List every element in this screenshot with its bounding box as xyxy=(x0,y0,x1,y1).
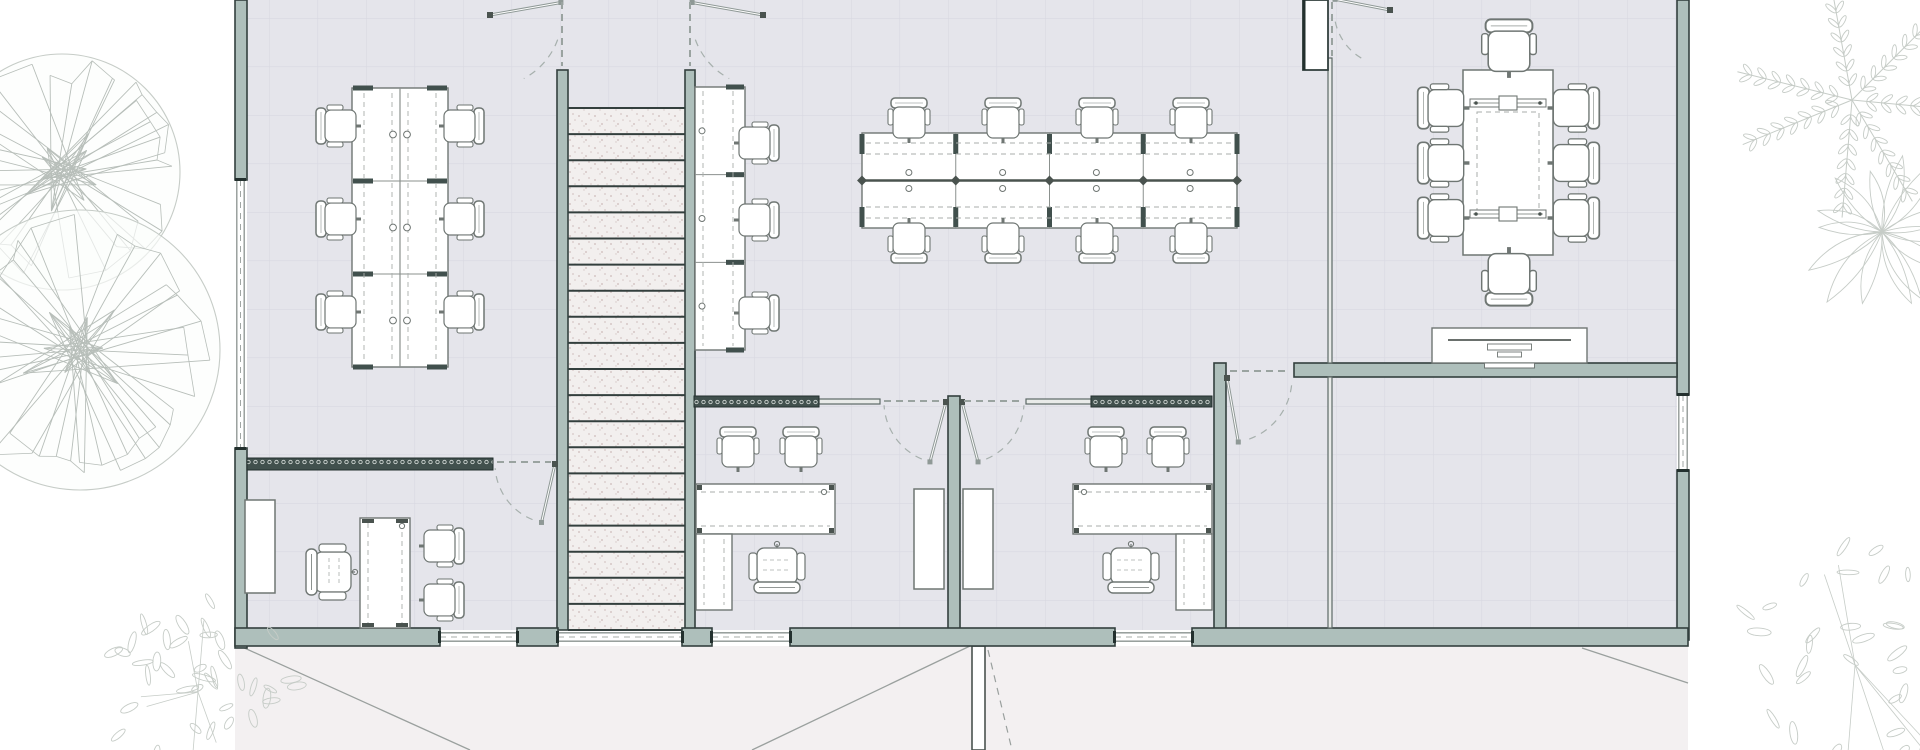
exterior-wall-bottom-5 xyxy=(1192,628,1688,646)
side-chair xyxy=(419,579,464,621)
side-chair xyxy=(1548,194,1600,242)
exterior-wall-bottom-4 xyxy=(790,628,1115,646)
exterior-wall-bottom-2 xyxy=(517,628,558,646)
side-chair xyxy=(717,427,759,472)
side-chair xyxy=(1418,84,1470,132)
cabinet-office-left xyxy=(914,489,944,589)
exterior-wall-left-upper xyxy=(235,0,247,180)
exterior-wall-bottom-3 xyxy=(682,628,712,646)
side-chair xyxy=(439,198,484,240)
side-chair xyxy=(982,98,1024,143)
side-chair xyxy=(439,291,484,333)
side-chair xyxy=(734,122,779,164)
side-chair xyxy=(419,525,464,567)
desk-bench-left xyxy=(352,86,448,370)
side-chair xyxy=(1548,139,1600,187)
media-sideboard xyxy=(1432,328,1587,368)
partition-office-left xyxy=(819,399,880,404)
cabinet-corner-office xyxy=(245,500,275,593)
side-chair xyxy=(1076,98,1118,143)
side-chair xyxy=(1170,218,1212,263)
partition-office-right xyxy=(1026,399,1091,404)
window-bottom-1 xyxy=(438,631,519,643)
window-right-wall xyxy=(1677,393,1689,472)
meeting-table xyxy=(1463,70,1553,255)
side-chair xyxy=(1548,84,1600,132)
office-divider-wall xyxy=(948,396,960,630)
corner-office-desk xyxy=(360,518,410,628)
side-chair xyxy=(1085,427,1127,472)
stairwell xyxy=(568,108,685,630)
stairwell-wall-right xyxy=(685,70,695,630)
side-chair xyxy=(1418,139,1470,187)
side-chair xyxy=(316,198,361,240)
window-bottom-2 xyxy=(710,631,792,643)
glazed-front-office-right xyxy=(1091,396,1212,407)
floor-plan-canvas xyxy=(0,0,1920,750)
floor-plan-page xyxy=(0,0,1920,750)
exterior-wall-right-upper xyxy=(1677,0,1689,395)
side-chair xyxy=(316,291,361,333)
side-chair xyxy=(1418,194,1470,242)
stairwell-wall-left xyxy=(557,70,568,630)
side-chair xyxy=(1147,427,1189,472)
side-chair xyxy=(734,292,779,334)
side-chair xyxy=(982,218,1024,263)
side-chair xyxy=(1076,218,1118,263)
glazed-front-office-left xyxy=(694,396,819,407)
lower-roof-band xyxy=(235,646,1688,750)
side-chair xyxy=(1170,98,1212,143)
side-chair xyxy=(316,105,361,147)
meeting-room-glass-wall-upper xyxy=(1328,58,1332,363)
side-chair xyxy=(439,105,484,147)
desk-bench-central xyxy=(857,133,1242,228)
side-chair xyxy=(1482,19,1537,78)
window-left-wall xyxy=(235,178,246,450)
side-chair xyxy=(1482,247,1537,306)
cabinet-office-right xyxy=(963,489,993,589)
side-chair xyxy=(888,218,930,263)
side-chair xyxy=(780,427,822,472)
meeting-area-wall-vertical xyxy=(1214,363,1226,630)
window-bottom-stair xyxy=(556,631,684,643)
glazed-front-corner-office xyxy=(247,458,493,470)
service-closet xyxy=(1303,0,1328,70)
meeting-room-glass-wall-lower xyxy=(1328,377,1332,628)
exterior-wall-right-lower xyxy=(1677,470,1689,640)
side-chair xyxy=(888,98,930,143)
window-bottom-3 xyxy=(1113,631,1194,643)
side-chair xyxy=(734,199,779,241)
exterior-wall-bottom-1 xyxy=(235,628,440,646)
